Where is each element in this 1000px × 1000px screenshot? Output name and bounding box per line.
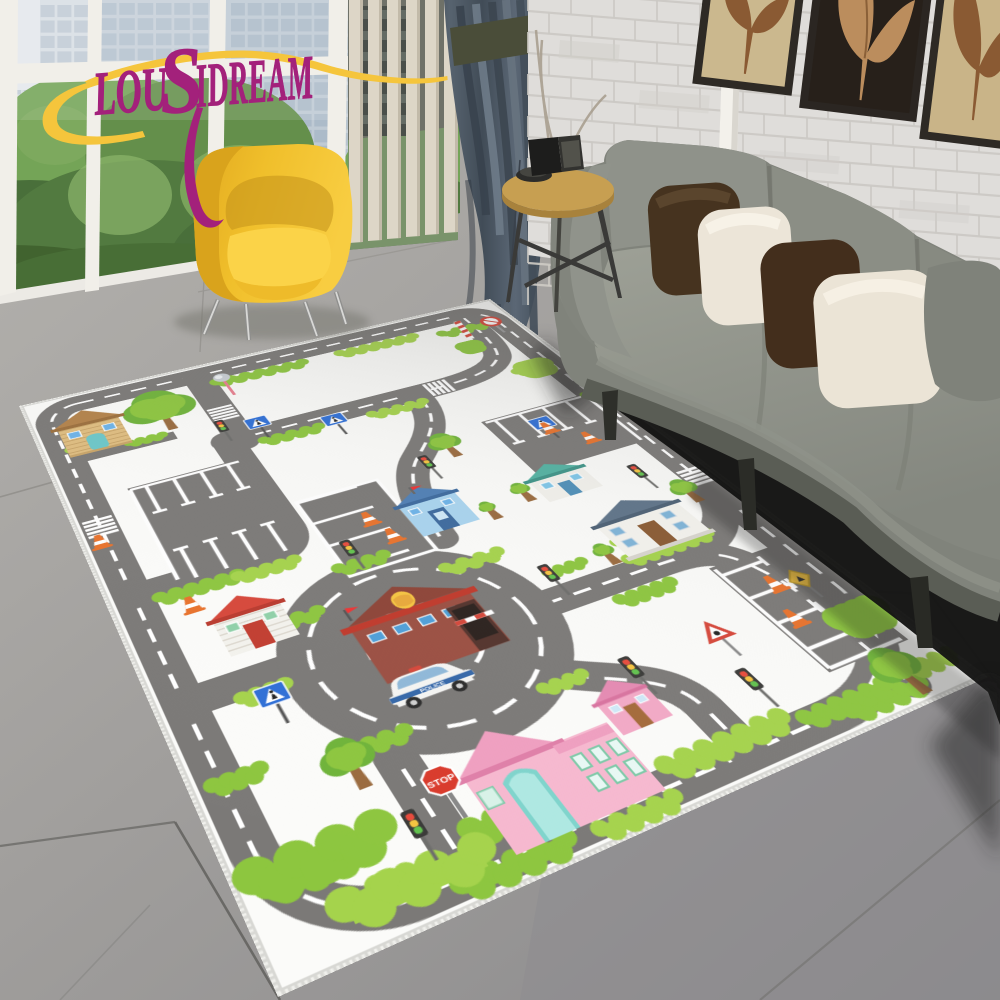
svg-text:IDREAM: IDREAM <box>192 44 316 121</box>
